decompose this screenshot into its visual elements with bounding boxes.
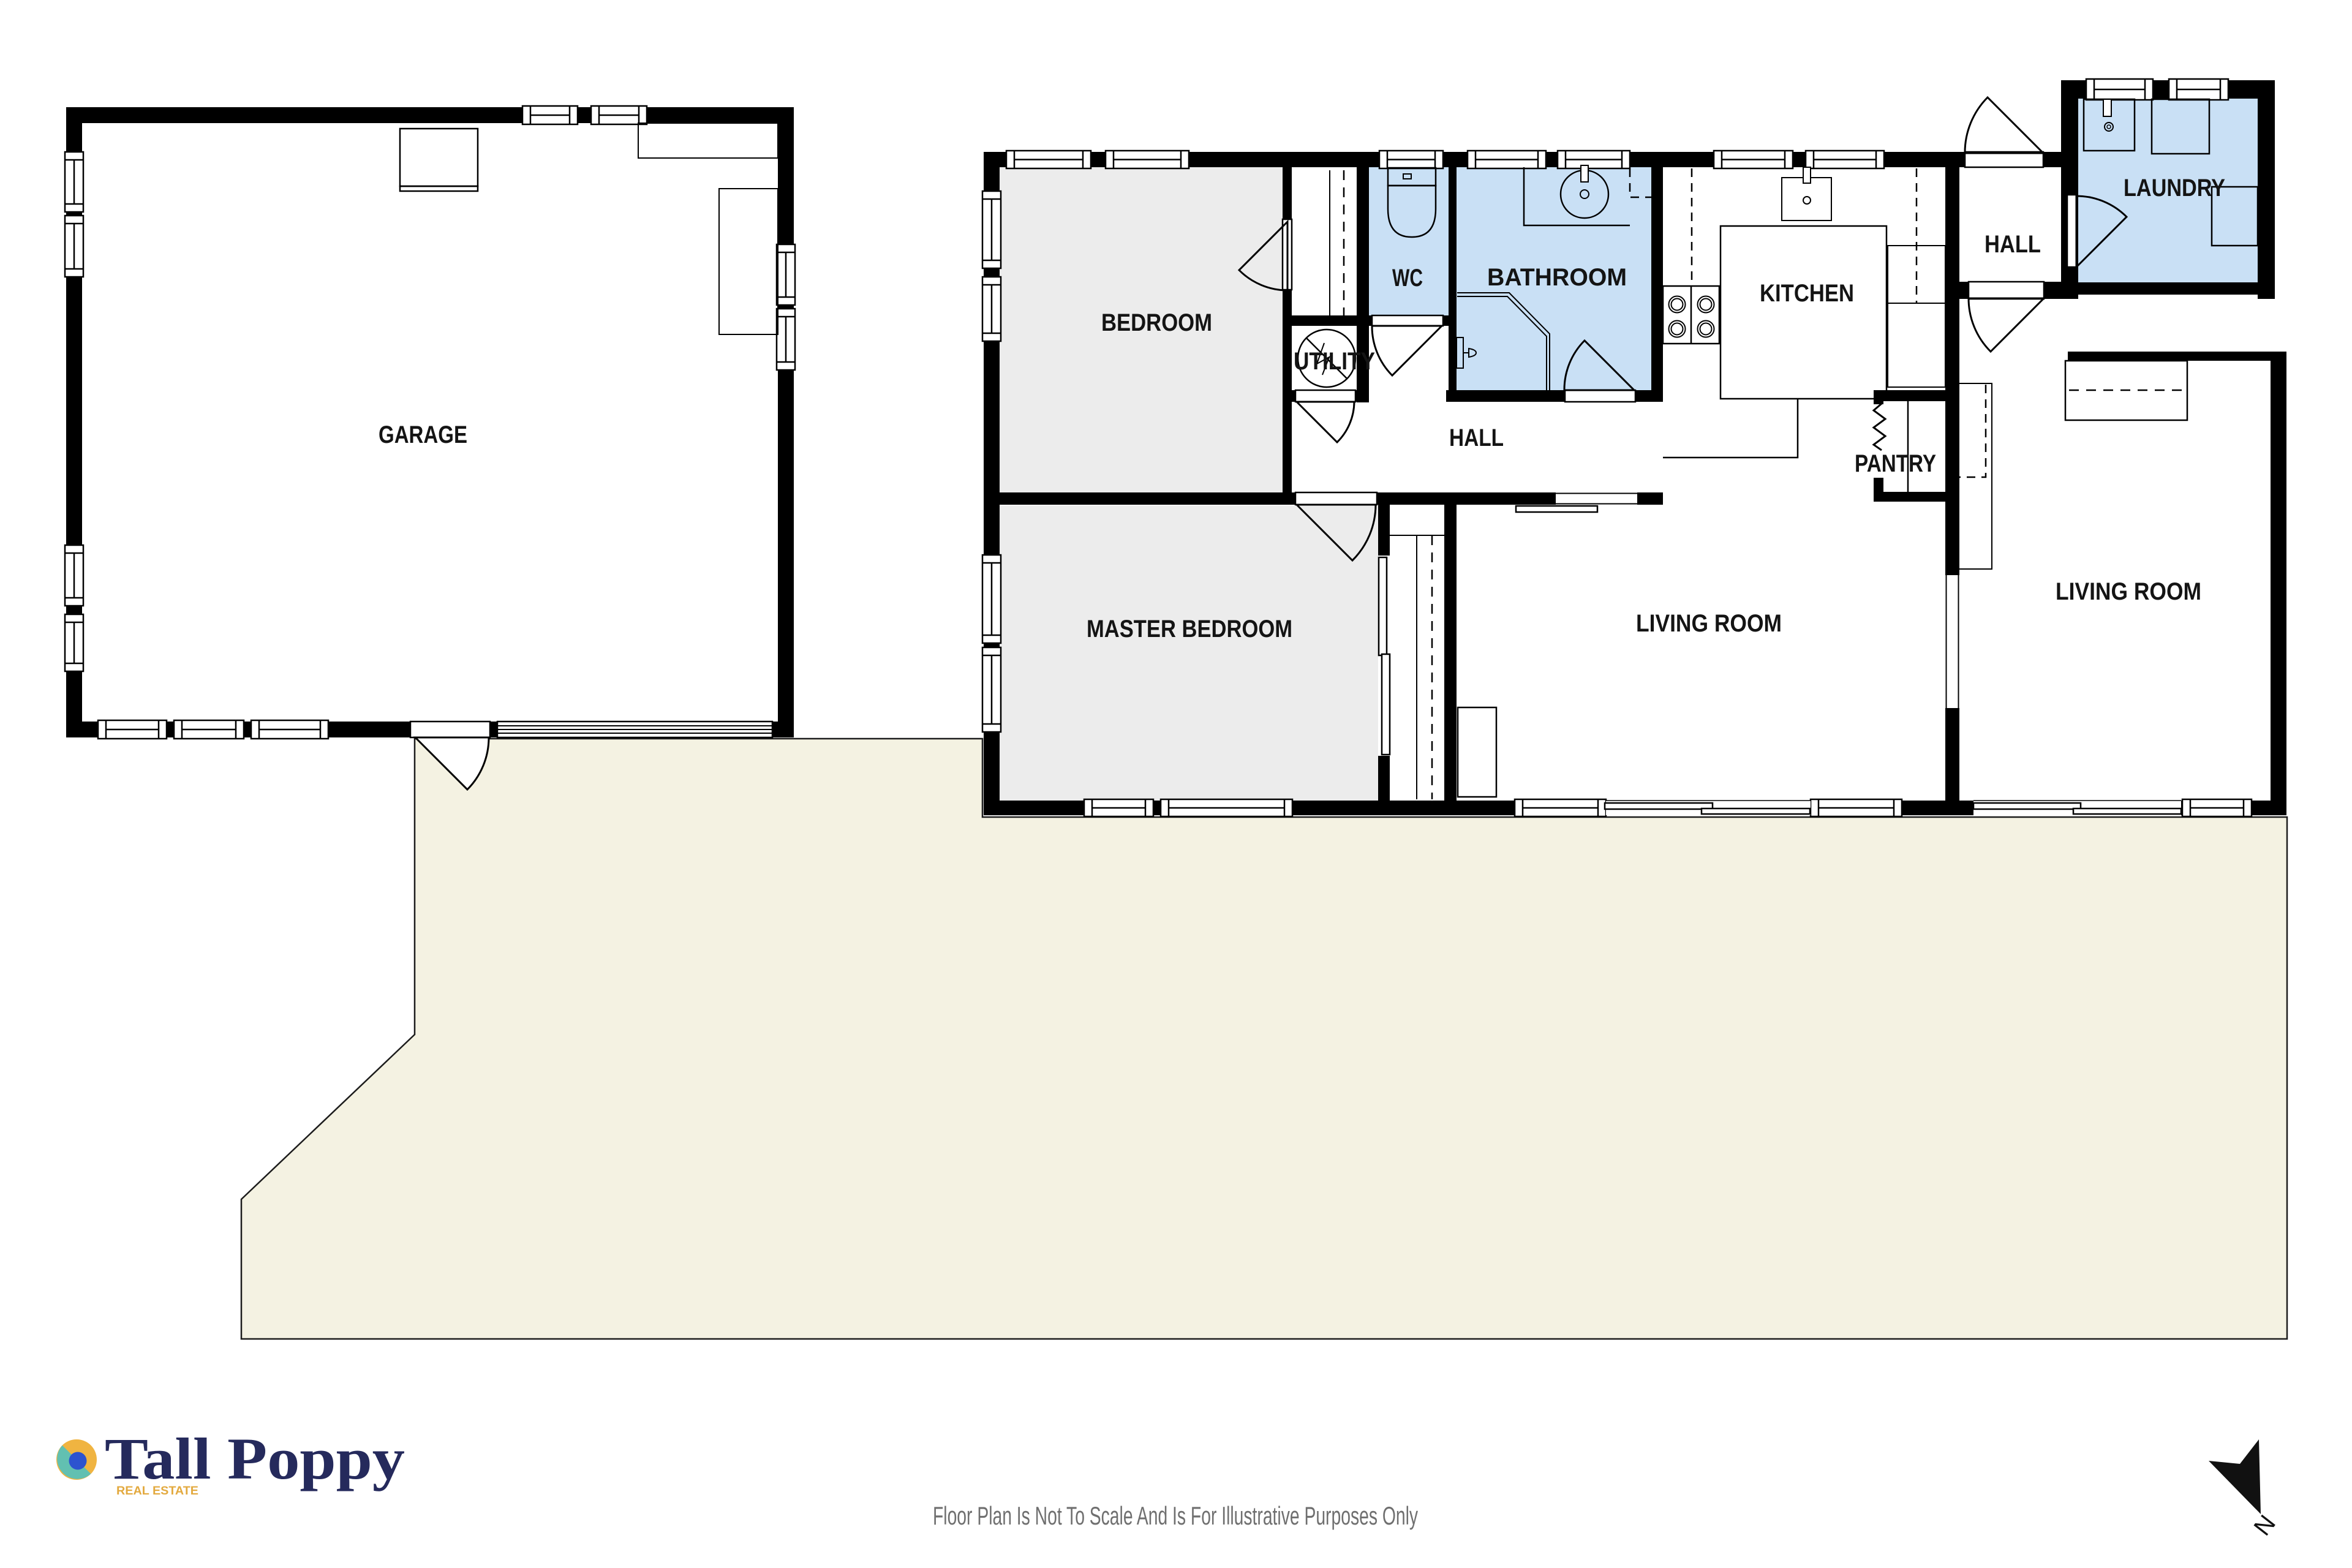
svg-text:HALL: HALL	[1985, 231, 2041, 258]
svg-text:HALL: HALL	[1449, 424, 1504, 451]
svg-text:BEDROOM: BEDROOM	[1101, 309, 1212, 336]
svg-text:Tall Poppy: Tall Poppy	[105, 1426, 405, 1491]
svg-text:Floor Plan Is Not To Scale And: Floor Plan Is Not To Scale And Is For Il…	[933, 1501, 1418, 1530]
svg-text:UTILITY: UTILITY	[1294, 348, 1375, 375]
svg-text:BATHROOM: BATHROOM	[1487, 264, 1627, 291]
svg-text:LIVING ROOM: LIVING ROOM	[1636, 610, 1782, 637]
svg-text:REAL ESTATE: REAL ESTATE	[116, 1485, 198, 1498]
svg-text:GARAGE: GARAGE	[379, 421, 467, 448]
svg-text:LAUNDRY: LAUNDRY	[2124, 175, 2225, 202]
svg-text:MASTER BEDROOM: MASTER BEDROOM	[1087, 616, 1292, 643]
svg-text:WC: WC	[1392, 265, 1423, 292]
svg-text:LIVING ROOM: LIVING ROOM	[2056, 578, 2201, 605]
svg-text:KITCHEN: KITCHEN	[1760, 280, 1854, 307]
svg-text:PANTRY: PANTRY	[1855, 450, 1936, 477]
